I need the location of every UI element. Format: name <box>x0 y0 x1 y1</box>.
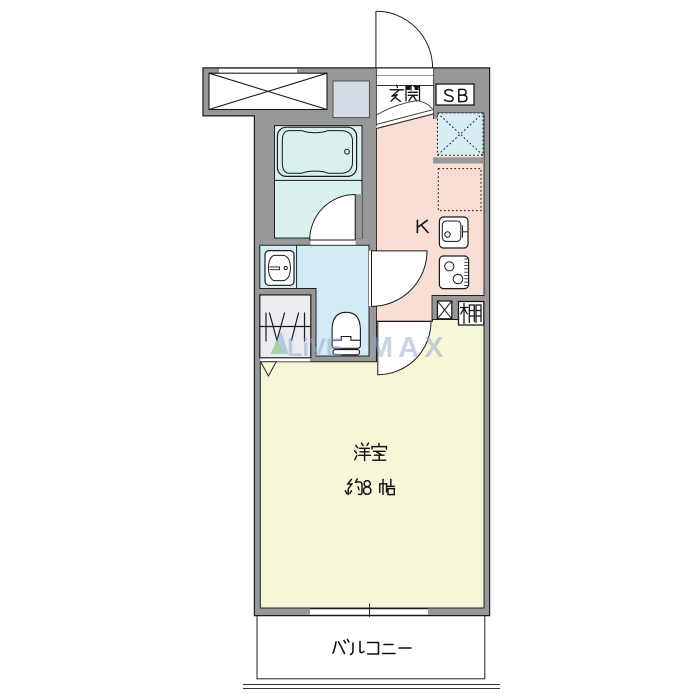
svg-text:MAX: MAX <box>369 332 448 364</box>
svg-text:LiVE: LiVE <box>287 334 343 362</box>
